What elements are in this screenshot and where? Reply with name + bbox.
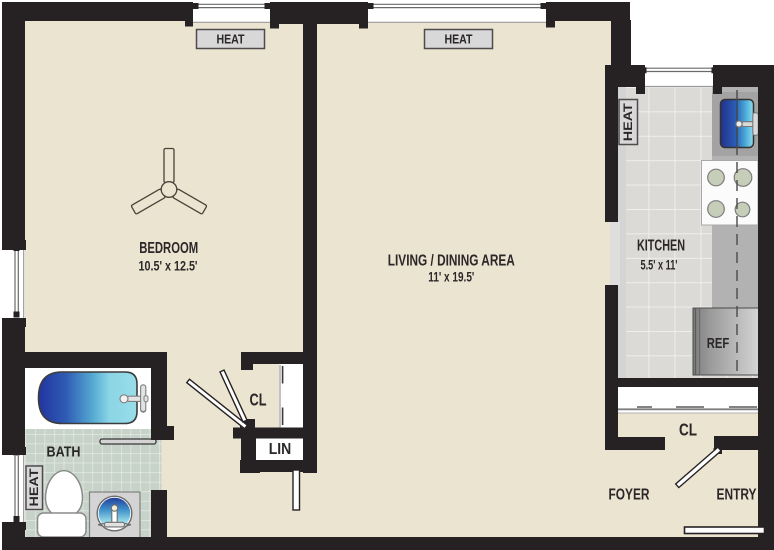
svg-text:LIVING / DINING AREA: LIVING / DINING AREA bbox=[388, 253, 515, 270]
svg-text:HEAT: HEAT bbox=[623, 103, 635, 141]
svg-text:CL: CL bbox=[250, 390, 267, 410]
svg-text:HEAT: HEAT bbox=[29, 469, 41, 507]
svg-text:CL: CL bbox=[679, 420, 697, 440]
svg-text:BEDROOM: BEDROOM bbox=[139, 240, 198, 257]
svg-text:KITCHEN: KITCHEN bbox=[637, 238, 685, 255]
svg-text:HEAT: HEAT bbox=[217, 32, 245, 47]
svg-text:BATH: BATH bbox=[47, 444, 81, 461]
svg-text:HEAT: HEAT bbox=[445, 32, 473, 47]
svg-text:5.5' x 11': 5.5' x 11' bbox=[641, 257, 678, 273]
svg-text:LIN: LIN bbox=[269, 441, 292, 458]
svg-text:REF: REF bbox=[707, 336, 730, 352]
svg-text:10.5' x 12.5': 10.5' x 12.5' bbox=[139, 258, 198, 274]
svg-text:11' x 19.5': 11' x 19.5' bbox=[428, 269, 474, 285]
svg-text:FOYER: FOYER bbox=[609, 487, 650, 504]
svg-text:ENTRY: ENTRY bbox=[717, 487, 757, 504]
